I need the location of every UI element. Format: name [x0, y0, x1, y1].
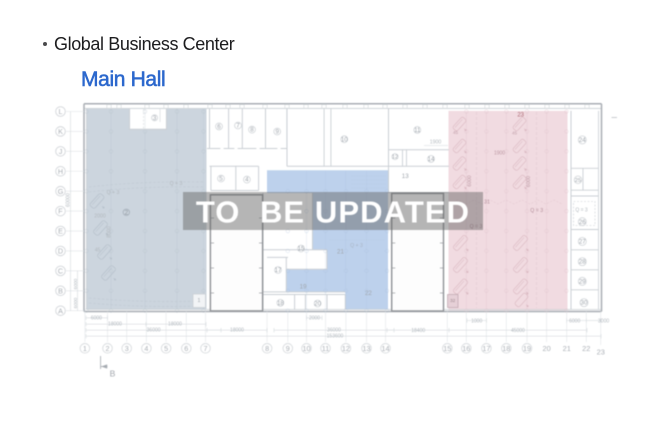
svg-text:TO BE UPDATED: TO BE UPDATED: [196, 195, 470, 230]
svg-text:26: 26: [579, 219, 586, 226]
svg-text:45: 45: [453, 130, 459, 135]
svg-text:153600: 153600: [327, 334, 344, 340]
svg-text:Q + 3: Q + 3: [170, 181, 183, 187]
svg-text:12: 12: [392, 155, 398, 161]
svg-text:36000: 36000: [147, 328, 161, 334]
svg-text:60000: 60000: [66, 193, 72, 207]
svg-text:2000: 2000: [94, 214, 106, 220]
svg-text:16: 16: [462, 344, 470, 353]
svg-text:6000: 6000: [73, 278, 79, 289]
svg-text:3: 3: [125, 344, 129, 353]
svg-text:9: 9: [275, 129, 279, 136]
svg-text:Q = 3: Q = 3: [530, 208, 543, 214]
svg-text:L: L: [59, 107, 63, 116]
svg-text:30: 30: [581, 300, 588, 307]
svg-text:G: G: [58, 187, 64, 196]
svg-text:29: 29: [579, 278, 586, 285]
svg-text:F: F: [58, 207, 63, 216]
svg-text:1: 1: [83, 344, 87, 353]
svg-text:Q + 3: Q + 3: [107, 190, 120, 196]
svg-text:3: 3: [153, 115, 157, 122]
svg-text:1: 1: [198, 298, 201, 304]
svg-text:19: 19: [300, 284, 307, 291]
svg-text:27: 27: [579, 239, 586, 246]
svg-text:6000: 6000: [467, 175, 473, 186]
svg-text:3000: 3000: [598, 318, 609, 324]
svg-text:6: 6: [184, 344, 188, 353]
svg-text:H: H: [58, 167, 63, 176]
svg-text:10: 10: [341, 136, 348, 143]
svg-text:18400: 18400: [411, 328, 425, 334]
svg-text:8: 8: [265, 344, 269, 353]
svg-text:19: 19: [523, 344, 531, 353]
svg-text:18000: 18000: [230, 328, 244, 334]
svg-text:22: 22: [365, 290, 372, 297]
svg-text:Q + 3: Q + 3: [350, 243, 363, 249]
svg-text:45000: 45000: [511, 328, 525, 334]
svg-text:7: 7: [236, 123, 240, 130]
svg-text:24: 24: [579, 137, 586, 144]
svg-text:11: 11: [414, 127, 421, 134]
svg-text:2000: 2000: [309, 315, 320, 321]
svg-text:28: 28: [579, 259, 586, 266]
svg-text:B: B: [58, 286, 63, 295]
svg-text:K: K: [58, 127, 63, 136]
svg-text:32: 32: [450, 298, 456, 304]
svg-text:31: 31: [484, 200, 490, 206]
svg-text:6: 6: [217, 124, 221, 131]
svg-text:18000: 18000: [108, 322, 122, 328]
svg-text:9: 9: [286, 344, 290, 353]
svg-text:6000: 6000: [73, 297, 79, 308]
svg-text:2: 2: [125, 209, 129, 216]
svg-text:45: 45: [95, 248, 101, 254]
svg-text:15: 15: [298, 246, 305, 253]
svg-text:D: D: [58, 247, 63, 256]
svg-text:14: 14: [428, 156, 435, 163]
svg-text:12: 12: [342, 344, 350, 353]
svg-text:17: 17: [275, 267, 282, 274]
svg-text:B: B: [110, 369, 116, 379]
svg-text:45: 45: [512, 131, 518, 136]
svg-text:1000: 1000: [471, 318, 482, 324]
svg-text:13: 13: [363, 344, 371, 353]
svg-text:8000: 8000: [107, 226, 113, 238]
svg-text:17: 17: [482, 344, 490, 353]
svg-text:5: 5: [219, 176, 223, 183]
svg-text:5: 5: [164, 344, 168, 353]
svg-text:15: 15: [443, 344, 451, 353]
svg-text:20: 20: [542, 344, 550, 353]
svg-text:23: 23: [597, 348, 605, 357]
svg-text:6000: 6000: [91, 315, 102, 321]
svg-text:4: 4: [144, 344, 148, 353]
svg-text:A: A: [58, 306, 63, 315]
svg-text:25: 25: [575, 178, 581, 184]
svg-text:13: 13: [402, 173, 409, 180]
svg-text:20: 20: [314, 301, 321, 308]
svg-text:10: 10: [303, 344, 311, 353]
svg-text:14: 14: [382, 344, 390, 353]
svg-text:21: 21: [337, 249, 344, 256]
svg-text:1900: 1900: [430, 140, 442, 146]
svg-text:2: 2: [106, 344, 110, 353]
svg-text:23: 23: [517, 113, 524, 119]
svg-text:1900: 1900: [494, 151, 505, 157]
svg-text:11: 11: [322, 344, 329, 353]
svg-text:C: C: [58, 266, 63, 275]
svg-text:21: 21: [563, 344, 571, 353]
svg-text:6000: 6000: [526, 176, 532, 187]
svg-text:6000: 6000: [569, 318, 580, 324]
svg-text:E: E: [58, 227, 63, 236]
svg-text:J: J: [59, 147, 63, 156]
svg-text:18: 18: [277, 300, 284, 307]
svg-text:18: 18: [502, 344, 510, 353]
svg-text:7: 7: [204, 344, 208, 353]
svg-text:8: 8: [250, 127, 254, 134]
svg-text:22: 22: [582, 344, 590, 353]
svg-text:4: 4: [245, 177, 249, 184]
svg-text:Q = 3: Q = 3: [575, 207, 588, 213]
svg-text:18000: 18000: [168, 322, 182, 328]
